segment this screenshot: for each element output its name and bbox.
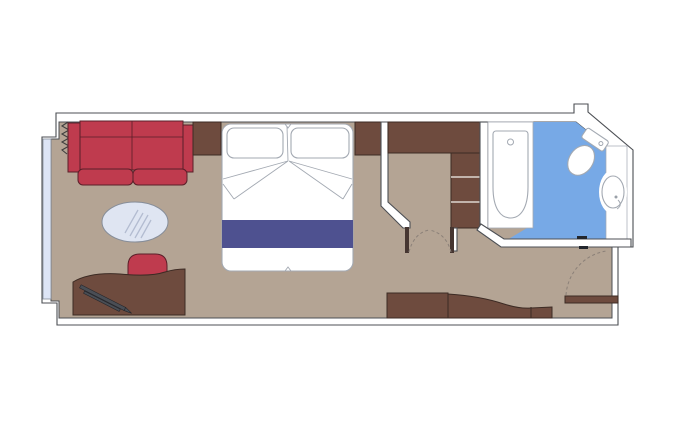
pillow-right [291, 128, 349, 158]
bathroom-wall-left [480, 122, 488, 229]
sofa-armrest-left [68, 123, 80, 172]
floorplan-svg [0, 0, 700, 433]
sink-basin [602, 176, 624, 208]
bathtub [493, 131, 528, 218]
shelf-unit [451, 153, 482, 228]
bathroom-door-pivot [579, 246, 588, 249]
floorplan-image [0, 0, 700, 433]
sofa-seat-right [133, 169, 187, 185]
double-bed [222, 124, 353, 271]
nightstand-right [355, 122, 381, 155]
door-jamb-left [405, 227, 409, 253]
sideboard-left [387, 293, 448, 318]
sink-drain [615, 196, 618, 199]
bed-runner [222, 220, 353, 248]
balcony-window [43, 139, 51, 299]
bathtub-basin [493, 131, 528, 218]
sofa [68, 121, 193, 185]
coffee-table [102, 202, 168, 242]
bathroom-door-pivot [577, 236, 587, 239]
sofa-back [80, 121, 183, 170]
sink [602, 176, 624, 209]
nightstand-left [193, 122, 221, 155]
sofa-seat-left [78, 169, 133, 185]
entrance-door-leaf [565, 296, 618, 303]
coffee-table-top [102, 202, 168, 242]
wardrobe [388, 122, 482, 153]
shelf-body [451, 153, 482, 228]
pillow-left [227, 128, 283, 158]
sofa-armrest-right [183, 125, 193, 172]
